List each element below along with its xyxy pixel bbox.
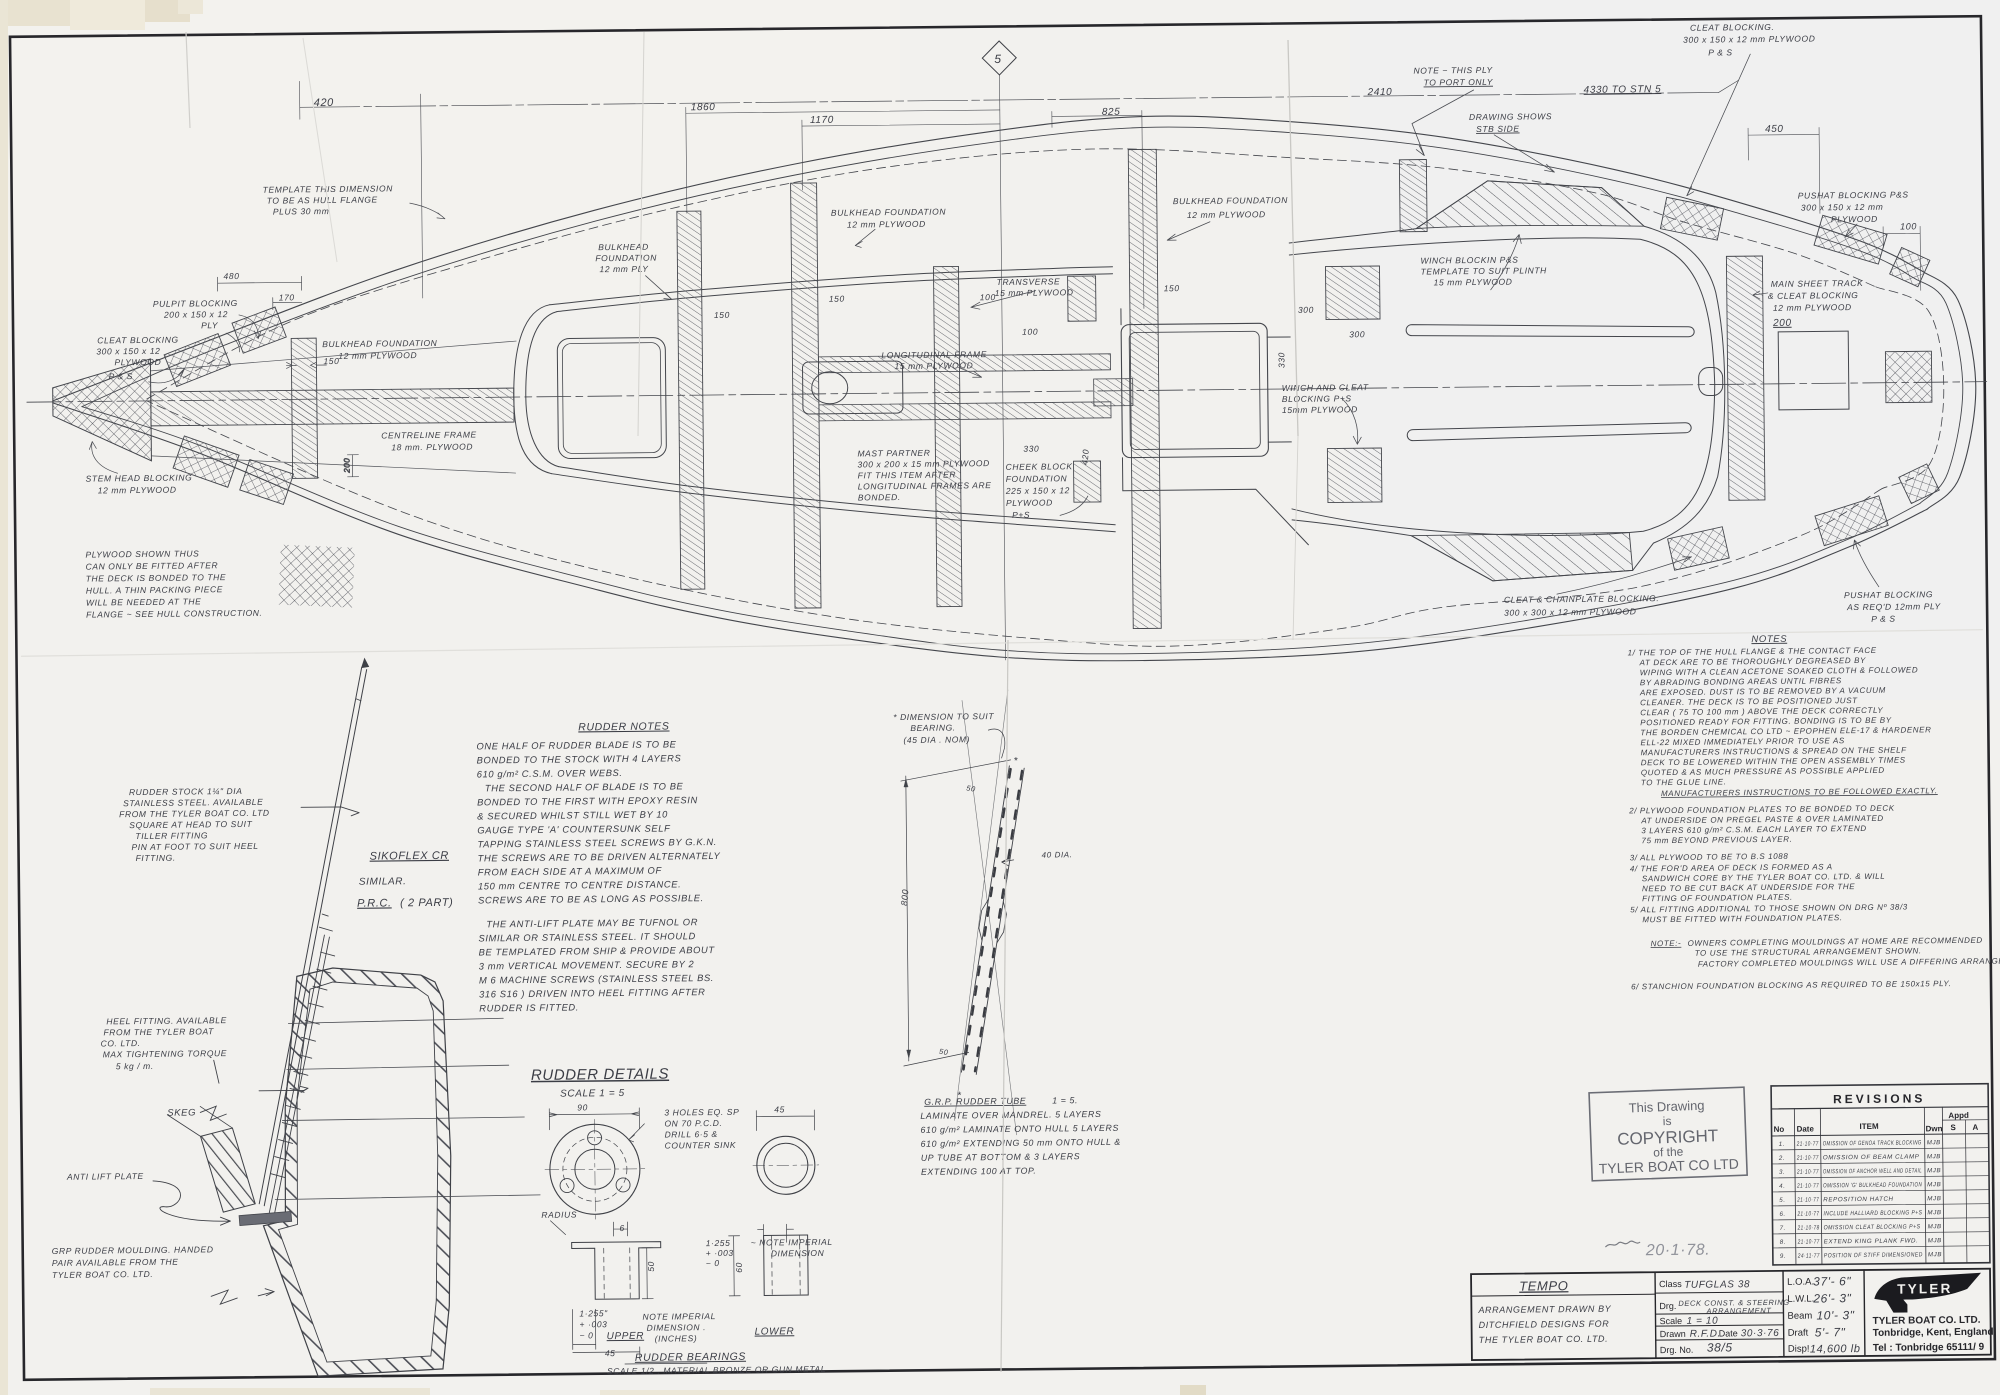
svg-text:WILL BE NEEDED AT THE: WILL BE NEEDED AT THE <box>86 596 202 607</box>
svg-text:75 mm BEYOND PREVIOUS L: 75 mm BEYOND PREVIOUS LAYER. <box>1641 835 1792 846</box>
svg-text:OMISSION 'G' BULKHEAD FOUNDATI: OMISSION 'G' BULKHEAD FOUNDATION <box>1823 1181 1922 1189</box>
svg-text:TEMPLATE TO SUIT PLINTH: TEMPLATE TO SUIT PLINTH <box>1420 265 1547 276</box>
svg-text:150: 150 <box>1164 283 1180 293</box>
svg-text:MJB: MJB <box>1927 1181 1941 1188</box>
svg-text:PAIR AVAILABLE FROM THE: PAIR AVAILABLE FROM THE <box>52 1257 179 1268</box>
svg-text:MJB: MJB <box>1927 1209 1941 1216</box>
svg-text:A: A <box>1972 1123 1978 1132</box>
svg-text:CLEAT & CHAINPLATE BLOCKING: CLEAT & CHAINPLATE BLOCKING. <box>1504 593 1659 605</box>
svg-text:HULL. A THIN PACKING PIECE: HULL. A THIN PACKING PIECE <box>86 584 223 595</box>
svg-text:1·255: 1·255 <box>706 1238 731 1248</box>
svg-text:− 0: − 0 <box>706 1258 720 1268</box>
svg-text:STAINLESS STEEL. AVAILABLE: STAINLESS STEEL. AVAILABLE <box>123 797 263 808</box>
svg-text:BONDED TO THE STOCK WITH: BONDED TO THE STOCK WITH 4 LAYERS <box>477 752 682 765</box>
svg-text:SKEG: SKEG <box>167 1107 196 1118</box>
svg-text:LAMINATE OVER MANDREL. 5 LA: LAMINATE OVER MANDREL. 5 LAYERS <box>920 1109 1101 1121</box>
svg-text:CHEEK BLOCK: CHEEK BLOCK <box>1006 461 1073 472</box>
svg-text:NOTE:-: NOTE:- <box>1651 939 1682 948</box>
svg-text:P & S: P & S <box>109 371 134 381</box>
svg-text:610 g/m² LAMINATE ONTO HUL: 610 g/m² LAMINATE ONTO HULL 5 LAYERS <box>920 1123 1119 1135</box>
svg-text:Dwn: Dwn <box>1925 1124 1942 1133</box>
svg-text:LONGITUDINAL FRAMES ARE: LONGITUDINAL FRAMES ARE <box>858 480 992 491</box>
svg-text:21·10·77: 21·10·77 <box>1797 1196 1820 1203</box>
svg-text:No: No <box>1773 1125 1784 1134</box>
svg-text:1 = 10: 1 = 10 <box>1686 1316 1718 1327</box>
svg-text:300 x 150 x 12 mm: 300 x 150 x 12 mm <box>1801 202 1884 213</box>
svg-text:TEMPO: TEMPO <box>1519 1278 1568 1294</box>
svg-text:CO. LTD.: CO. LTD. <box>100 1038 140 1048</box>
svg-text:DITCHFIELD DESIGNS FOR: DITCHFIELD DESIGNS FOR <box>1479 1319 1610 1330</box>
svg-text:300 x 200 x 15 mm PLYWOOD: 300 x 200 x 15 mm PLYWOOD <box>857 458 989 469</box>
svg-text:ITEM: ITEM <box>1859 1122 1879 1131</box>
svg-text:THE DECK IS BONDED TO THE: THE DECK IS BONDED TO THE <box>86 572 227 583</box>
svg-text:DIMENSION: DIMENSION <box>771 1248 825 1259</box>
svg-text:15 mm PLYWOOD: 15 mm PLYWOOD <box>894 360 973 371</box>
svg-text:24·11·77: 24·11·77 <box>1797 1252 1820 1259</box>
svg-text:38/5: 38/5 <box>1707 1340 1733 1354</box>
svg-text:PLYWOOD: PLYWOOD <box>114 357 161 367</box>
svg-text:21·10·77: 21·10·77 <box>1797 1210 1820 1217</box>
svg-text:21·10·77: 21·10·77 <box>1796 1182 1819 1189</box>
svg-text:NOTES: NOTES <box>1751 634 1787 645</box>
svg-text:1 = 5.: 1 = 5. <box>1052 1095 1078 1105</box>
svg-text:15 mm PLYWOOD: 15 mm PLYWOOD <box>1434 277 1513 288</box>
svg-text:P & S: P & S <box>1871 614 1896 624</box>
svg-text:P+S: P+S <box>1012 510 1030 520</box>
svg-text:FLANGE ~ SEE HULL CONSTRUC: FLANGE ~ SEE HULL CONSTRUCTION. <box>86 608 263 620</box>
svg-text:800: 800 <box>899 889 910 907</box>
svg-text:RUDDER BEARINGS: RUDDER BEARINGS <box>635 1351 746 1364</box>
svg-text:DIMENSION .: DIMENSION . <box>647 1322 707 1333</box>
svg-text:30·3·76: 30·3·76 <box>1741 1328 1780 1339</box>
svg-text:26'- 3": 26'- 3" <box>1812 1291 1851 1305</box>
svg-text:20·1·78.: 20·1·78. <box>1645 1242 1711 1260</box>
svg-text:5: 5 <box>994 52 1001 66</box>
svg-text:FITTING OF FOUNDATION PL: FITTING OF FOUNDATION PLATES. <box>1642 893 1793 904</box>
svg-text:12 mm PLYWOOD: 12 mm PLYWOOD <box>338 350 417 361</box>
svg-text:TO BE AS HULL FLANGE: TO BE AS HULL FLANGE <box>267 194 378 205</box>
svg-text:300 x 150 x 12 mm PLYWOOD: 300 x 150 x 12 mm PLYWOOD <box>1683 33 1815 44</box>
svg-text:825: 825 <box>1102 107 1121 118</box>
svg-text:SIKOFLEX CR: SIKOFLEX CR <box>370 850 449 863</box>
svg-text:+ ·003: + ·003 <box>706 1248 734 1258</box>
svg-text:OMISSION OF ANCHOR WELL AND DE: OMISSION OF ANCHOR WELL AND DETAIL <box>1823 1167 1922 1175</box>
svg-text:21·10·77: 21·10·77 <box>1797 1238 1820 1245</box>
svg-text:MAST PARTNER: MAST PARTNER <box>857 448 930 459</box>
svg-text:37'- 6": 37'- 6" <box>1813 1274 1851 1288</box>
svg-text:FOUNDATION: FOUNDATION <box>1006 473 1068 484</box>
svg-text:DRILL 6·5 &: DRILL 6·5 & <box>664 1129 717 1140</box>
svg-text:12 mm PLYWOOD: 12 mm PLYWOOD <box>1187 209 1266 220</box>
svg-text:300: 300 <box>1298 305 1314 315</box>
svg-text:PULPIT BLOCKING: PULPIT BLOCKING <box>153 298 238 309</box>
svg-text:FROM THE TYLER BOAT: FROM THE TYLER BOAT <box>103 1026 214 1037</box>
svg-text:PLUS 30 mm: PLUS 30 mm <box>273 206 330 217</box>
svg-text:OMISSION OF BEAM CLAMP: OMISSION OF BEAM CLAMP <box>1823 1153 1920 1161</box>
svg-text:21·10·78: 21·10·78 <box>1797 1224 1820 1231</box>
svg-text:Beam: Beam <box>1787 1311 1812 1322</box>
svg-text:Drawn: Drawn <box>1660 1329 1686 1339</box>
svg-text:* DIMENSION TO SUIT: * DIMENSION TO SUIT <box>893 711 994 722</box>
svg-text:PLYWOOD SHOWN THUS: PLYWOOD SHOWN THUS <box>85 548 199 559</box>
svg-text:6.: 6. <box>1779 1211 1785 1218</box>
svg-text:420: 420 <box>1080 449 1091 466</box>
svg-text:6: 6 <box>619 1223 624 1233</box>
svg-text:420: 420 <box>314 97 335 109</box>
svg-text:ONE HALF OF RUDDER BLADE: ONE HALF OF RUDDER BLADE IS TO BE <box>476 738 676 751</box>
svg-text:(INCHES): (INCHES) <box>655 1333 698 1343</box>
svg-text:1860: 1860 <box>691 102 716 113</box>
svg-text:150 mm CENTRE TO CENTRE: 150 mm CENTRE TO CENTRE DISTANCE. <box>478 878 681 891</box>
svg-text:CENTRELINE FRAME: CENTRELINE FRAME <box>381 429 477 440</box>
svg-text:& SECURED WHILST STILL WET: & SECURED WHILST STILL WET BY 10 <box>477 808 668 821</box>
svg-text:~ NOTE IMPERIAL: ~ NOTE IMPERIAL <box>751 1237 833 1248</box>
svg-text:INCLUDE HALLIARD BLOCKING P+S: INCLUDE HALLIARD BLOCKING P+S <box>1823 1209 1922 1217</box>
svg-text:ANTI LIFT PLATE: ANTI LIFT PLATE <box>66 1171 144 1182</box>
svg-text:BLOCKING P+S: BLOCKING P+S <box>1282 393 1352 404</box>
svg-text:LONGITUDINAL FRAME: LONGITUDINAL FRAME <box>881 349 987 360</box>
svg-text:3/ ALL PLYWOOD TO BE T: 3/ ALL PLYWOOD TO BE TO B.S 1088 <box>1630 852 1789 863</box>
svg-text:MAX TIGHTENING TORQUE: MAX TIGHTENING TORQUE <box>103 1048 227 1059</box>
svg-text:OMISSION CLEAT BLOCKING P+S: OMISSION CLEAT BLOCKING P+S <box>1824 1223 1921 1231</box>
svg-text:TILLER FITTING: TILLER FITTING <box>135 830 208 841</box>
svg-text:1170: 1170 <box>810 115 834 126</box>
svg-text:450: 450 <box>1765 124 1784 135</box>
svg-text:CLEAT BLOCKING.: CLEAT BLOCKING. <box>1690 22 1775 33</box>
svg-text:50: 50 <box>646 1261 656 1272</box>
svg-text:RUDDER IS FITTED.: RUDDER IS FITTED. <box>479 1001 579 1013</box>
svg-text:RUDDER STOCK 1¼" DIA: RUDDER STOCK 1¼" DIA <box>129 786 243 797</box>
svg-text:1·255": 1·255" <box>579 1308 608 1318</box>
svg-text:610 g/m² EXTENDING 50 mm: 610 g/m² EXTENDING 50 mm ONTO HULL & <box>921 1137 1121 1149</box>
svg-text:8.: 8. <box>1780 1239 1786 1246</box>
svg-text:COUNTER SINK: COUNTER SINK <box>665 1140 737 1151</box>
svg-text:CLEAT BLOCKING: CLEAT BLOCKING <box>97 335 179 346</box>
svg-text:FIT THIS ITEM AFTER: FIT THIS ITEM AFTER <box>858 469 957 480</box>
svg-text:SIMILAR OR STAINLESS STE: SIMILAR OR STAINLESS STEEL. IT SHOULD <box>478 930 695 943</box>
svg-text:MJB: MJB <box>1927 1153 1941 1160</box>
svg-text:RUDDER NOTES: RUDDER NOTES <box>578 720 669 733</box>
svg-text:DRAWING SHOWS: DRAWING SHOWS <box>1469 111 1552 122</box>
svg-text:BEARING.: BEARING. <box>910 722 956 732</box>
svg-text:40 DIA.: 40 DIA. <box>1042 850 1073 859</box>
svg-text:Date: Date <box>1719 1328 1738 1338</box>
svg-text:EXTEND KING PLANK FWD.: EXTEND KING PLANK FWD. <box>1824 1237 1919 1245</box>
svg-text:TO THE GLUE LINE.: TO THE GLUE LINE. <box>1641 777 1727 787</box>
svg-text:UP TUBE AT BOTTOM & 3 LAY: UP TUBE AT BOTTOM & 3 LAYERS <box>921 1151 1080 1163</box>
svg-text:200: 200 <box>342 458 351 474</box>
svg-text:100: 100 <box>980 292 996 302</box>
svg-text:THE TYLER BOAT CO. LTD.: THE TYLER BOAT CO. LTD. <box>1479 1334 1609 1345</box>
svg-text:Date: Date <box>1796 1124 1814 1133</box>
svg-text:330: 330 <box>1023 444 1039 454</box>
svg-text:SCALE 1 = 5: SCALE 1 = 5 <box>560 1088 625 1100</box>
svg-text:150: 150 <box>829 294 845 304</box>
svg-text:5'- 7": 5'- 7" <box>1815 1325 1846 1339</box>
svg-text:P & S: P & S <box>1708 47 1733 57</box>
svg-text:FROM EACH SIDE AT A M: FROM EACH SIDE AT A MAXIMUM OF <box>478 865 663 878</box>
svg-text:TRANSVERSE: TRANSVERSE <box>997 276 1061 287</box>
svg-text:STEM HEAD BLOCKING: STEM HEAD BLOCKING <box>86 472 193 483</box>
svg-text:300 x 300 x 12 mm PLYWOOD: 300 x 300 x 12 mm PLYWOOD <box>1504 606 1636 617</box>
svg-text:50: 50 <box>938 1047 949 1057</box>
svg-text:15 mm PLYWOOD: 15 mm PLYWOOD <box>995 287 1074 298</box>
svg-text:12 mm PLYWOOD: 12 mm PLYWOOD <box>98 485 177 496</box>
svg-text:PUSHAT BLOCKING: PUSHAT BLOCKING <box>1844 589 1933 600</box>
svg-text:300: 300 <box>1349 329 1365 339</box>
svg-text:+ ·003: + ·003 <box>579 1319 607 1329</box>
svg-text:12 mm PLYWOOD: 12 mm PLYWOOD <box>847 219 926 230</box>
svg-text:R.F.D.: R.F.D. <box>1690 1328 1721 1339</box>
svg-text:Tel : Tonbridge 65111/ 9: Tel : Tonbridge 65111/ 9 <box>1873 1342 1985 1354</box>
svg-text:Appd: Appd <box>1948 1111 1969 1120</box>
svg-text:THE SECOND HALF OF BLADE: THE SECOND HALF OF BLADE IS TO BE <box>485 780 684 793</box>
svg-text:PUSHAT BLOCKING P&S: PUSHAT BLOCKING P&S <box>1798 189 1909 200</box>
svg-text:ARRANGEMENT: ARRANGEMENT <box>1705 1306 1772 1316</box>
svg-text:Class: Class <box>1659 1279 1682 1289</box>
svg-text:& CLEAT BLOCKING: & CLEAT BLOCKING <box>1768 290 1859 301</box>
svg-text:1.: 1. <box>1779 1141 1785 1148</box>
svg-text:Drg. No.: Drg. No. <box>1660 1345 1694 1355</box>
svg-text:PLY: PLY <box>201 320 219 330</box>
svg-text:RADIUS: RADIUS <box>541 1209 577 1219</box>
svg-text:5 kg / m.: 5 kg / m. <box>116 1061 154 1071</box>
svg-text:Disp!: Disp! <box>1788 1344 1810 1355</box>
svg-text:PLYWOOD: PLYWOOD <box>1006 497 1053 507</box>
svg-text:3.: 3. <box>1779 1169 1785 1176</box>
svg-text:BONDED TO THE FIRST WITH: BONDED TO THE FIRST WITH EPOXY RESIN <box>477 794 698 807</box>
svg-text:This Drawing: This Drawing <box>1628 1098 1704 1116</box>
svg-text:SQUARE AT HEAD TO SUIT: SQUARE AT HEAD TO SUIT <box>129 819 252 830</box>
svg-text:MJB: MJB <box>1927 1167 1941 1174</box>
svg-text:15mm PLYWOOD: 15mm PLYWOOD <box>1282 404 1358 415</box>
svg-text:45: 45 <box>605 1348 616 1358</box>
svg-text:UPPER: UPPER <box>607 1331 645 1342</box>
svg-text:21·10·77: 21·10·77 <box>1796 1140 1819 1147</box>
svg-text:TO PORT ONLY: TO PORT ONLY <box>1424 77 1494 88</box>
svg-text:MJB: MJB <box>1928 1251 1942 1258</box>
svg-text:ON 70 P.C.D.: ON 70 P.C.D. <box>664 1118 722 1129</box>
svg-text:SIMILAR.: SIMILAR. <box>359 876 407 887</box>
svg-text:HEEL FITTING. AVAILABLE: HEEL FITTING. AVAILABLE <box>106 1015 227 1026</box>
svg-text:BULKHEAD FOUNDATION: BULKHEAD FOUNDATION <box>322 338 438 349</box>
svg-text:PLYWOOD: PLYWOOD <box>1831 214 1878 224</box>
svg-text:STB SIDE: STB SIDE <box>1476 124 1520 134</box>
svg-text:P.R.C.: P.R.C. <box>357 897 392 909</box>
svg-text:TYLER BOAT CO. LTD.: TYLER BOAT CO. LTD. <box>52 1269 153 1280</box>
svg-text:− 0: − 0 <box>580 1330 594 1340</box>
svg-text:TUFGLAS 38: TUFGLAS 38 <box>1684 1279 1750 1291</box>
svg-text:100: 100 <box>1022 327 1038 337</box>
svg-text:200: 200 <box>1772 318 1792 329</box>
svg-text:THE ANTI-LIFT PLATE MAY B: THE ANTI-LIFT PLATE MAY BE TUFNOL OR <box>486 916 698 929</box>
svg-text:2.: 2. <box>1778 1155 1785 1162</box>
svg-text:NOTE ~ THIS PLY: NOTE ~ THIS PLY <box>1413 65 1493 76</box>
svg-text:TEMPLATE THIS DIMENSION: TEMPLATE THIS DIMENSION <box>263 183 394 194</box>
svg-text:BULKHEAD FOUNDATION: BULKHEAD FOUNDATION <box>831 207 947 218</box>
svg-text:610 g/m² C.S.M. OVER WEBS.: 610 g/m² C.S.M. OVER WEBS. <box>477 767 623 780</box>
svg-text:BONDED.: BONDED. <box>858 492 901 502</box>
svg-text:21·10·77: 21·10·77 <box>1796 1168 1819 1175</box>
svg-text:WINCH BLOCKIN P&S: WINCH BLOCKIN P&S <box>1420 255 1518 266</box>
svg-text:150: 150 <box>323 356 339 366</box>
svg-text:MJB: MJB <box>1927 1195 1941 1202</box>
svg-text:MJB: MJB <box>1927 1139 1941 1146</box>
svg-text:FROM THE TYLER BOAT CO. LT: FROM THE TYLER BOAT CO. LTD <box>119 808 270 820</box>
svg-text:90: 90 <box>577 1102 588 1112</box>
svg-text:45: 45 <box>774 1104 785 1114</box>
svg-text:POSITION OF STIFF DIMENSIONED: POSITION OF STIFF DIMENSIONED <box>1824 1251 1923 1259</box>
svg-text:12 mm PLY: 12 mm PLY <box>599 264 649 275</box>
svg-text:21·10·77: 21·10·77 <box>1796 1154 1819 1161</box>
svg-text:10'- 3": 10'- 3" <box>1816 1308 1854 1322</box>
svg-text:RUDDER DETAILS: RUDDER DETAILS <box>531 1065 669 1083</box>
svg-text:4.: 4. <box>1779 1183 1785 1190</box>
svg-text:480: 480 <box>223 271 239 281</box>
svg-text:200 x 150 x 12: 200 x 150 x 12 <box>163 309 228 320</box>
svg-text:MAIN SHEET TRACK: MAIN SHEET TRACK <box>1771 278 1864 289</box>
svg-text:Draft: Draft <box>1788 1328 1809 1339</box>
svg-text:*: * <box>1014 756 1019 767</box>
svg-text:LOWER: LOWER <box>755 1326 795 1337</box>
svg-text:3 mm VERTICAL MOVEMENT. SEC: 3 mm VERTICAL MOVEMENT. SECURE BY 2 <box>479 958 695 971</box>
svg-text:7.: 7. <box>1780 1225 1786 1232</box>
svg-text:300 x 150 x 12: 300 x 150 x 12 <box>96 346 160 357</box>
svg-text:GRP RUDDER MOULDING. HANDED: GRP RUDDER MOULDING. HANDED <box>52 1244 214 1256</box>
svg-text:150: 150 <box>714 310 730 320</box>
svg-text:170: 170 <box>279 292 295 302</box>
svg-text:WINCH AND CLEAT: WINCH AND CLEAT <box>1282 382 1369 393</box>
svg-text:2410: 2410 <box>1367 87 1393 98</box>
svg-text:225 x 150 x 12: 225 x 150 x 12 <box>1005 485 1070 496</box>
svg-text:PIN AT FOOT TO SUIT HEE: PIN AT FOOT TO SUIT HEEL <box>131 841 258 852</box>
svg-text:ARRANGEMENT DRAWN BY: ARRANGEMENT DRAWN BY <box>1477 1304 1611 1315</box>
svg-text:12 mm PLYWOOD: 12 mm PLYWOOD <box>1773 302 1852 313</box>
svg-text:50: 50 <box>966 783 977 793</box>
svg-text:100: 100 <box>1900 221 1917 231</box>
svg-text:60: 60 <box>734 1262 744 1273</box>
svg-text:14,600 lb: 14,600 lb <box>1810 1343 1861 1356</box>
svg-text:S: S <box>1950 1123 1956 1132</box>
svg-text:BULKHEAD FOUNDATION: BULKHEAD FOUNDATION <box>1173 195 1289 206</box>
svg-text:AS REQ'D 12mm PLY: AS REQ'D 12mm PLY <box>1846 601 1942 612</box>
svg-text:REPOSITION HATCH: REPOSITION HATCH <box>1823 1196 1893 1204</box>
svg-text:(45 DIA . NOM): (45 DIA . NOM) <box>903 734 970 745</box>
svg-text:NOTE IMPERIAL: NOTE IMPERIAL <box>642 1311 716 1322</box>
svg-text:MJB: MJB <box>1928 1237 1942 1244</box>
svg-text:330: 330 <box>1276 352 1286 368</box>
svg-text:3 HOLES EQ. SP: 3 HOLES EQ. SP <box>664 1107 739 1118</box>
svg-text:TYLER BOAT CO. LTD.: TYLER BOAT CO. LTD. <box>1872 1315 1980 1327</box>
svg-text:G.R.P. RUDDER TUBE: G.R.P. RUDDER TUBE <box>924 1096 1026 1107</box>
svg-text:OMISSION OF GENOA TRACK BLOCKI: OMISSION OF GENOA TRACK BLOCKING <box>1823 1139 1922 1147</box>
svg-text:L.W.L.: L.W.L. <box>1787 1294 1814 1305</box>
svg-text:( 2 PART): ( 2 PART) <box>400 897 453 910</box>
svg-text:EXTENDING 100 AT TOP.: EXTENDING 100 AT TOP. <box>921 1166 1037 1177</box>
svg-text:18 mm. PLYWOOD: 18 mm. PLYWOOD <box>391 442 473 453</box>
svg-text:TYLER: TYLER <box>1897 1281 1952 1297</box>
svg-text:is: is <box>1663 1114 1672 1128</box>
svg-text:FITTING.: FITTING. <box>136 853 176 863</box>
svg-text:4330 TO STN 5: 4330 TO STN 5 <box>1584 84 1662 96</box>
svg-text:Scale: Scale <box>1659 1316 1682 1326</box>
svg-text:5.: 5. <box>1779 1197 1785 1204</box>
svg-text:Tonbridge, Kent, England: Tonbridge, Kent, England <box>1873 1327 1994 1339</box>
svg-text:GAUGE TYPE 'A' COUNTERSUNK: GAUGE TYPE 'A' COUNTERSUNK SELF <box>477 822 671 835</box>
svg-text:9.: 9. <box>1780 1253 1786 1260</box>
svg-text:REVISIONS: REVISIONS <box>1833 1091 1926 1106</box>
svg-text:Drg.: Drg. <box>1659 1301 1676 1311</box>
svg-text:CAN ONLY BE FITTED AFTER: CAN ONLY BE FITTED AFTER <box>86 560 219 571</box>
svg-text:FOUNDATION: FOUNDATION <box>595 253 657 264</box>
svg-text:MJB: MJB <box>1928 1223 1942 1230</box>
svg-text:L.O.A.: L.O.A. <box>1787 1277 1814 1288</box>
